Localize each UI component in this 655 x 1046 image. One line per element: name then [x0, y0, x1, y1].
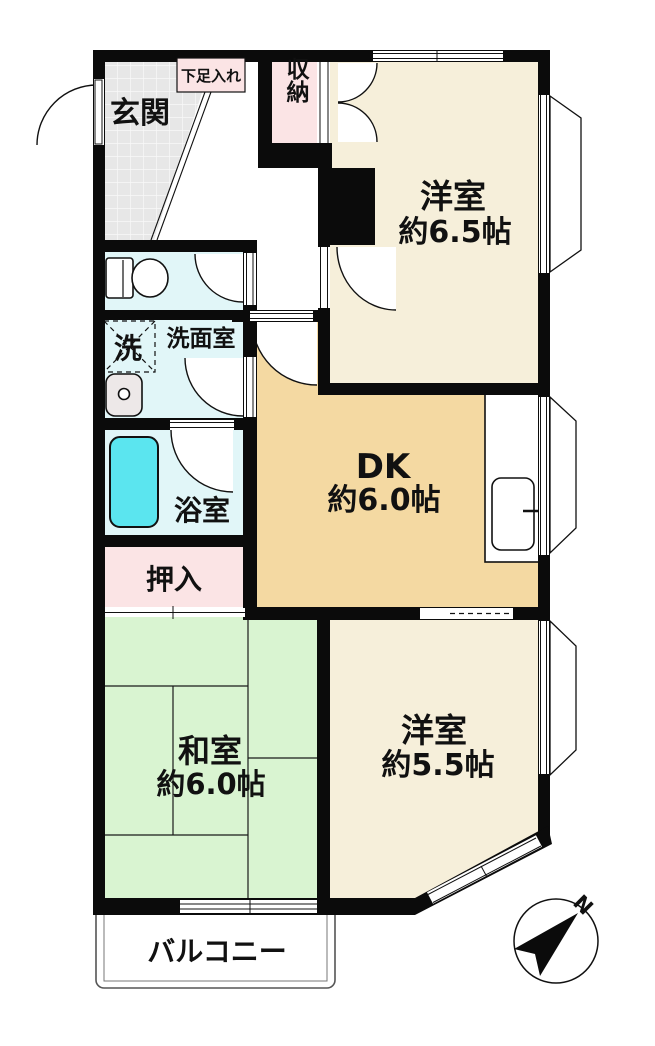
bay-window-dk [539, 397, 576, 555]
dk-west55-partition [420, 608, 513, 619]
bathroom-door-gap [170, 420, 234, 430]
entrance-door-gap [94, 79, 104, 145]
wall-bath-bottom [93, 535, 255, 547]
floor-plan-drawing: 玄関 下足入れ 収納 洋室 約6.5帖 洗 洗面室 浴室 DK 約6.0帖 押入… [0, 0, 655, 1046]
window-top [373, 50, 503, 62]
washroom-door-gap [244, 357, 256, 417]
label-bathroom: 浴室 [174, 494, 230, 527]
label-dk-size: 約6.0帖 [327, 483, 440, 518]
kitchen-sink [492, 478, 534, 550]
label-washroom: 洗面室 [167, 325, 236, 352]
label-oshiire: 押入 [146, 563, 202, 596]
label-balcony: バルコニー [147, 935, 286, 968]
floor-plan-page: 玄関 下足入れ 収納 洋室 約6.5帖 洗 洗面室 浴室 DK 約6.0帖 押入… [0, 0, 655, 1046]
label-genkan: 玄関 [110, 96, 170, 131]
wall-toilet-top [93, 240, 257, 252]
toilet-bowl [132, 259, 168, 297]
toilet-door-gap [244, 253, 256, 305]
label-japanese-room-size: 約6.0帖 [156, 767, 265, 801]
label-western-6-5: 洋室 [420, 177, 486, 216]
label-dk: DK [356, 447, 412, 487]
wall-storage-bottom [258, 143, 332, 168]
label-western-5-5: 洋室 [401, 711, 467, 750]
label-japanese-room: 和室 [178, 732, 242, 770]
kitchen-counter [485, 393, 542, 562]
entrance-door-swing [37, 85, 97, 145]
washroom-sink-drain [119, 389, 130, 400]
bay-window-west65 [539, 95, 581, 273]
bathtub [110, 437, 158, 527]
label-washer: 洗 [114, 332, 142, 365]
wall-japanese-right [317, 615, 330, 915]
compass: N [514, 890, 598, 983]
label-western-6-5-size: 約6.5帖 [398, 215, 511, 250]
wall-left [93, 62, 105, 915]
hall-dk-door [250, 311, 313, 321]
label-storage: 収納 [282, 57, 310, 104]
label-western-5-5-size: 約5.5帖 [381, 748, 494, 783]
label-shoe-cabinet: 下足入れ [181, 67, 241, 85]
toilet-tank [106, 258, 133, 298]
west65-door-gap [318, 247, 330, 308]
wall-toilet-bottom [93, 310, 255, 320]
wall-block-west65 [318, 168, 375, 245]
wall-west65-bottom [318, 383, 550, 395]
window-japanese-balcony [180, 898, 317, 915]
bay-window-west55 [539, 621, 576, 775]
